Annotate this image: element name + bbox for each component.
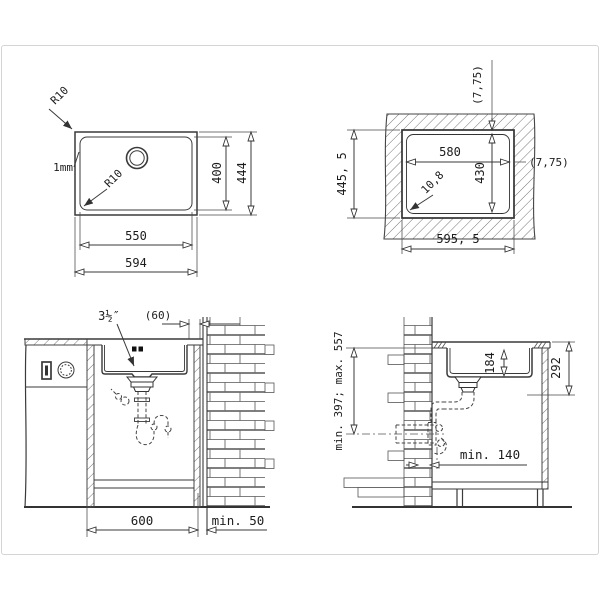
label-rear-gap: (60)	[145, 309, 172, 322]
dim-outer-height: 444	[199, 132, 257, 215]
radius-inner-callout: R10	[84, 167, 125, 206]
dim-inner-width: 550	[80, 212, 192, 250]
label-wall-gap: min. 50	[212, 513, 265, 528]
label-outer-width: 594	[125, 256, 147, 270]
label-outer-height: 444	[235, 162, 249, 184]
cutout-view-drawing: 445, 5 595, 5 580 (7,75) (7,75) 430 10,8	[332, 52, 597, 287]
dim-outer-width: 594	[75, 217, 197, 277]
drain-size-callout: 3½″	[98, 309, 134, 366]
label-height-below-top: 292	[549, 357, 563, 379]
brick-wall	[203, 317, 274, 535]
label-drain-size: 3½″	[98, 309, 120, 323]
radius-top-callout: R10	[48, 84, 72, 129]
mounting-clip	[132, 347, 137, 352]
dim-bowl-depth: 184	[483, 350, 504, 376]
label-offset-top: (7,75)	[471, 65, 484, 105]
sink-bowl-section	[102, 345, 187, 377]
brick-wall	[344, 317, 432, 507]
label-cutout-width: 580	[439, 145, 461, 159]
label-bowl-depth: 184	[483, 352, 497, 374]
worktop-section	[432, 342, 550, 348]
plan-view-drawing: R10 1mm R10 550 594 400 444	[35, 82, 285, 297]
dim-wall-gap: min. 50	[207, 513, 267, 530]
label-wall-distance: min. 140	[460, 447, 520, 462]
drain-assembly	[455, 377, 481, 392]
label-cutout-height: 430	[473, 162, 487, 184]
label-inner-height: 400	[210, 162, 224, 184]
dim-inner-height: 400	[194, 137, 232, 210]
dim-cabinet-width: 600	[87, 493, 198, 537]
side-section-drawing: 184 292 min. 397; max. 557 min. 140	[332, 297, 600, 552]
drain-assembly	[127, 377, 157, 392]
label-cabinet-width: 600	[131, 513, 154, 528]
dim-height-below-top: 292	[527, 342, 575, 395]
sink-plan-outline	[75, 132, 197, 215]
label-offset-right: (7,75)	[529, 156, 569, 169]
label-overall-width: 595, 5	[436, 232, 479, 246]
label-overall-height: 445, 5	[335, 152, 349, 195]
mounting-clip	[139, 347, 144, 352]
label-outlet-range: min. 397; max. 557	[332, 331, 345, 450]
adjacent-cabinet	[25, 339, 87, 507]
front-section-drawing: 3½″ (60) 600 min. 50	[22, 297, 292, 552]
label-radius-inner: R10	[102, 167, 125, 190]
label-radius-top: R10	[48, 84, 71, 107]
technical-drawing-page: { "plan": { "r10_top": "R10", "thickness…	[0, 0, 600, 600]
label-thickness: 1mm	[53, 161, 73, 174]
siphon-trap	[111, 389, 171, 445]
label-inner-width: 550	[125, 229, 147, 243]
